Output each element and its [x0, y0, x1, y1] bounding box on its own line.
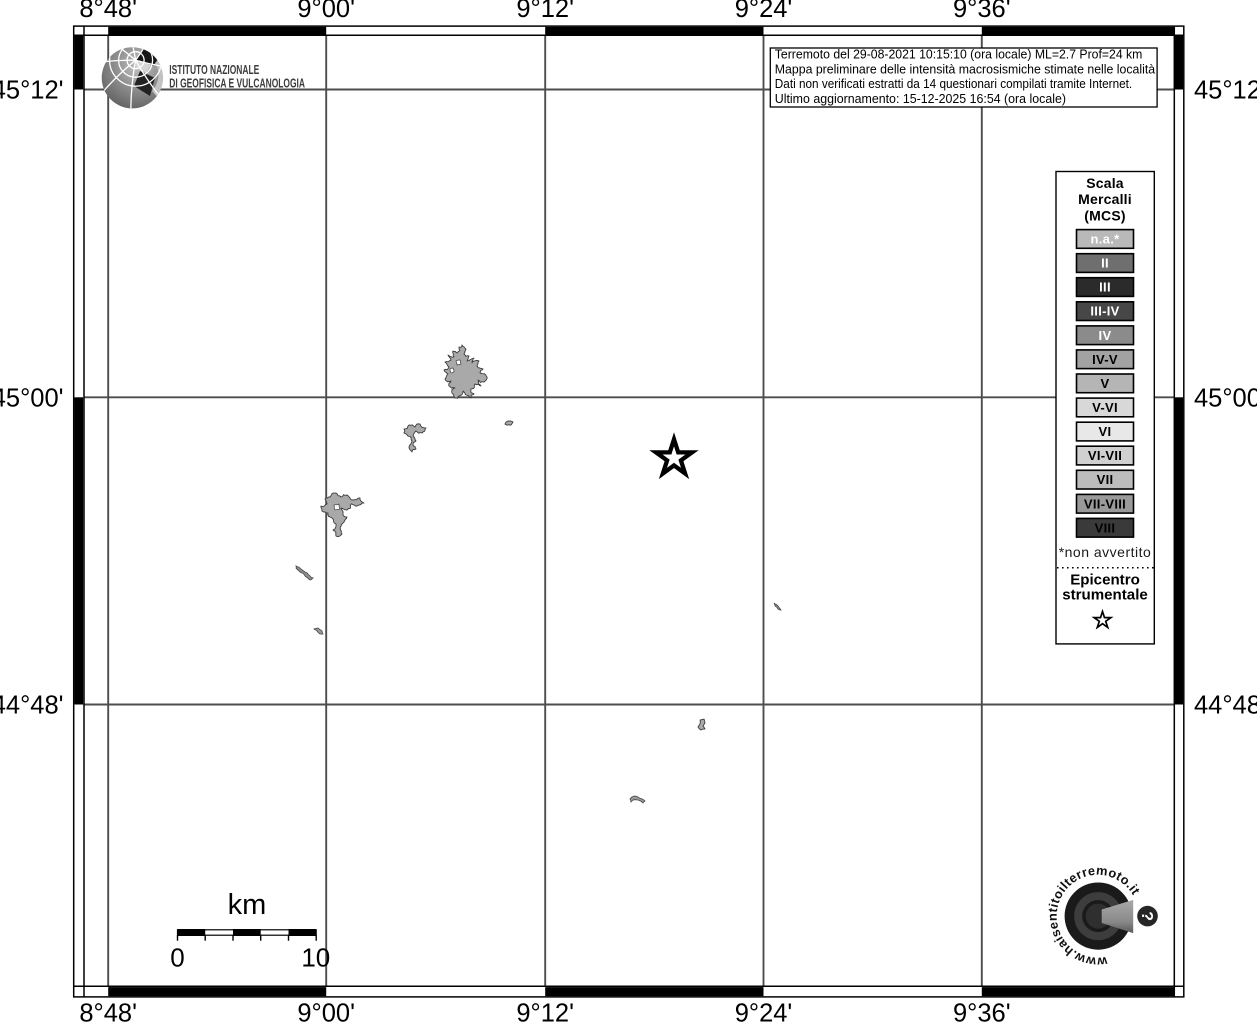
svg-text:VI: VI [1099, 424, 1112, 439]
svg-text:9°00': 9°00' [297, 1000, 355, 1024]
svg-text:45°00': 45°00' [0, 385, 64, 413]
svg-text:9°36': 9°36' [953, 0, 1011, 23]
svg-text:9°24': 9°24' [735, 1000, 793, 1024]
svg-text:44°48': 44°48' [0, 692, 64, 720]
svg-text:Terremoto del 29-08-2021 10:15: Terremoto del 29-08-2021 10:15:10 (ora l… [775, 47, 1143, 62]
svg-text:Dati non verificati estratti d: Dati non verificati estratti da 14 quest… [775, 76, 1132, 91]
svg-text:45°00': 45°00' [1194, 385, 1257, 413]
svg-text:9°36': 9°36' [953, 1000, 1011, 1024]
svg-text:III: III [1099, 280, 1111, 295]
svg-text:0: 0 [170, 943, 184, 973]
svg-text:8°48': 8°48' [79, 1000, 137, 1024]
svg-text:km: km [228, 889, 267, 921]
svg-text:III-IV: III-IV [1090, 304, 1119, 319]
svg-text:V-VI: V-VI [1092, 400, 1118, 415]
svg-text:9°24': 9°24' [735, 0, 793, 23]
svg-text:8°48': 8°48' [79, 0, 137, 23]
svg-text:?: ? [1138, 911, 1155, 921]
svg-text:10: 10 [301, 943, 330, 973]
svg-text:9°12': 9°12' [516, 1000, 574, 1024]
svg-text:V: V [1101, 376, 1110, 391]
svg-text:IV-V: IV-V [1092, 352, 1118, 367]
svg-text:VI-VII: VI-VII [1088, 448, 1122, 463]
svg-text:VII: VII [1097, 472, 1114, 487]
svg-text:*non avvertito: *non avvertito [1059, 544, 1152, 560]
svg-text:Mappa preliminare delle intens: Mappa preliminare delle intensità macros… [775, 61, 1156, 76]
svg-text:II: II [1101, 256, 1109, 271]
svg-text:45°12': 45°12' [0, 77, 64, 105]
svg-text:n.a.*: n.a.* [1091, 232, 1121, 247]
svg-text:(MCS): (MCS) [1084, 207, 1125, 223]
svg-text:45°12': 45°12' [1194, 77, 1257, 105]
svg-text:Ultimo aggiornamento: 15-12-20: Ultimo aggiornamento: 15-12-2025 16:54 (… [775, 91, 1066, 106]
svg-text:44°48': 44°48' [1194, 692, 1257, 720]
svg-text:Mercalli: Mercalli [1078, 191, 1132, 207]
svg-text:9°12': 9°12' [516, 0, 574, 23]
svg-text:Scala: Scala [1086, 175, 1124, 191]
svg-text:DI GEOFISICA E VULCANOLOGIA: DI GEOFISICA E VULCANOLOGIA [169, 76, 305, 91]
svg-text:IV: IV [1099, 328, 1112, 343]
svg-text:VII-VIII: VII-VIII [1084, 496, 1126, 511]
svg-text:strumentale: strumentale [1062, 587, 1148, 604]
svg-text:9°00': 9°00' [297, 0, 355, 23]
svg-text:VIII: VIII [1095, 520, 1116, 535]
